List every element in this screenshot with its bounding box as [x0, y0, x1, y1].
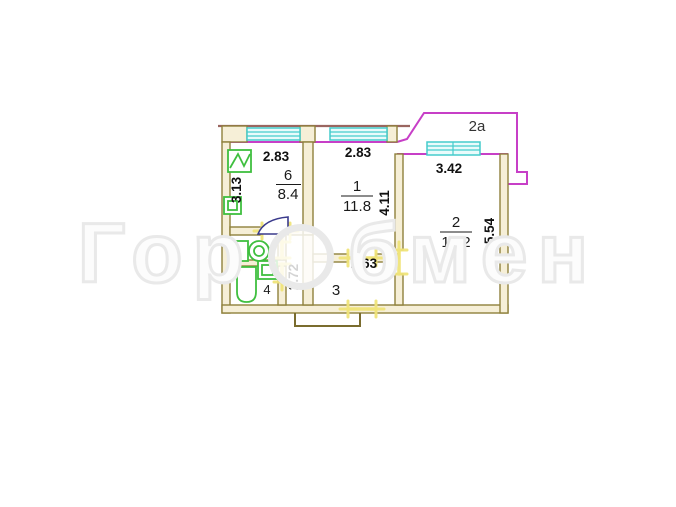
- room-area: 19.2: [441, 234, 470, 251]
- label-balcony: 2а: [469, 118, 486, 135]
- floor-plan-svg: 2.83 2.83 3.42 3.13 4.11 5.54 2.72 2.63 …: [0, 0, 676, 507]
- bathtub-icon: [237, 267, 256, 302]
- dim-room2-width: 3.42: [436, 161, 462, 176]
- window-icon: [330, 128, 387, 140]
- dim-room2-depth: 5.54: [482, 217, 497, 244]
- wall-segment: [387, 126, 397, 142]
- window-room2-balcony: [427, 142, 480, 155]
- dim-hallway-width: 2.63: [351, 256, 378, 271]
- entrance-porch-outline: [295, 313, 360, 326]
- dim-kitchen-width: 2.83: [263, 149, 290, 164]
- window-icon: [247, 128, 300, 140]
- room-area: 11.8: [343, 198, 371, 215]
- label-kitchen: 6 8.4: [276, 167, 301, 203]
- dim-room1-width: 2.83: [345, 145, 372, 160]
- label-room1: 1 11.8: [341, 178, 373, 215]
- room-number: 1: [353, 178, 361, 195]
- door-toilet: [274, 234, 290, 258]
- wall-corridor-hall: [303, 235, 313, 305]
- door-entrance: [340, 301, 384, 317]
- window-room1: [330, 128, 387, 140]
- toilet-icon: [236, 241, 269, 261]
- dim-room1-depth: 4.11: [377, 190, 392, 216]
- window-kitchen: [247, 128, 300, 140]
- dim-kitchen-depth: 3.13: [229, 176, 244, 203]
- stove-icon: [228, 150, 251, 172]
- wall-segment: [222, 126, 247, 142]
- dim-corridor-length: 2.72: [286, 264, 301, 290]
- label-toilet: 5: [230, 238, 237, 253]
- label-hallway: 3: [332, 282, 340, 299]
- wall-kitchen-room1: [303, 142, 313, 235]
- label-room2: 2 19.2: [440, 214, 472, 251]
- floor-plan-image: 2.83 2.83 3.42 3.13 4.11 5.54 2.72 2.63 …: [0, 0, 676, 507]
- wall-room2-left: [395, 274, 403, 305]
- wall-right: [500, 154, 508, 313]
- room-number: 6: [284, 167, 292, 184]
- wash-basin-icon: [258, 261, 277, 279]
- wall-segment: [300, 126, 315, 142]
- label-bathroom: 4: [263, 282, 270, 297]
- wall-room2-left: [395, 154, 403, 250]
- room-number: 2: [452, 214, 460, 231]
- room-area: 8.4: [278, 186, 299, 203]
